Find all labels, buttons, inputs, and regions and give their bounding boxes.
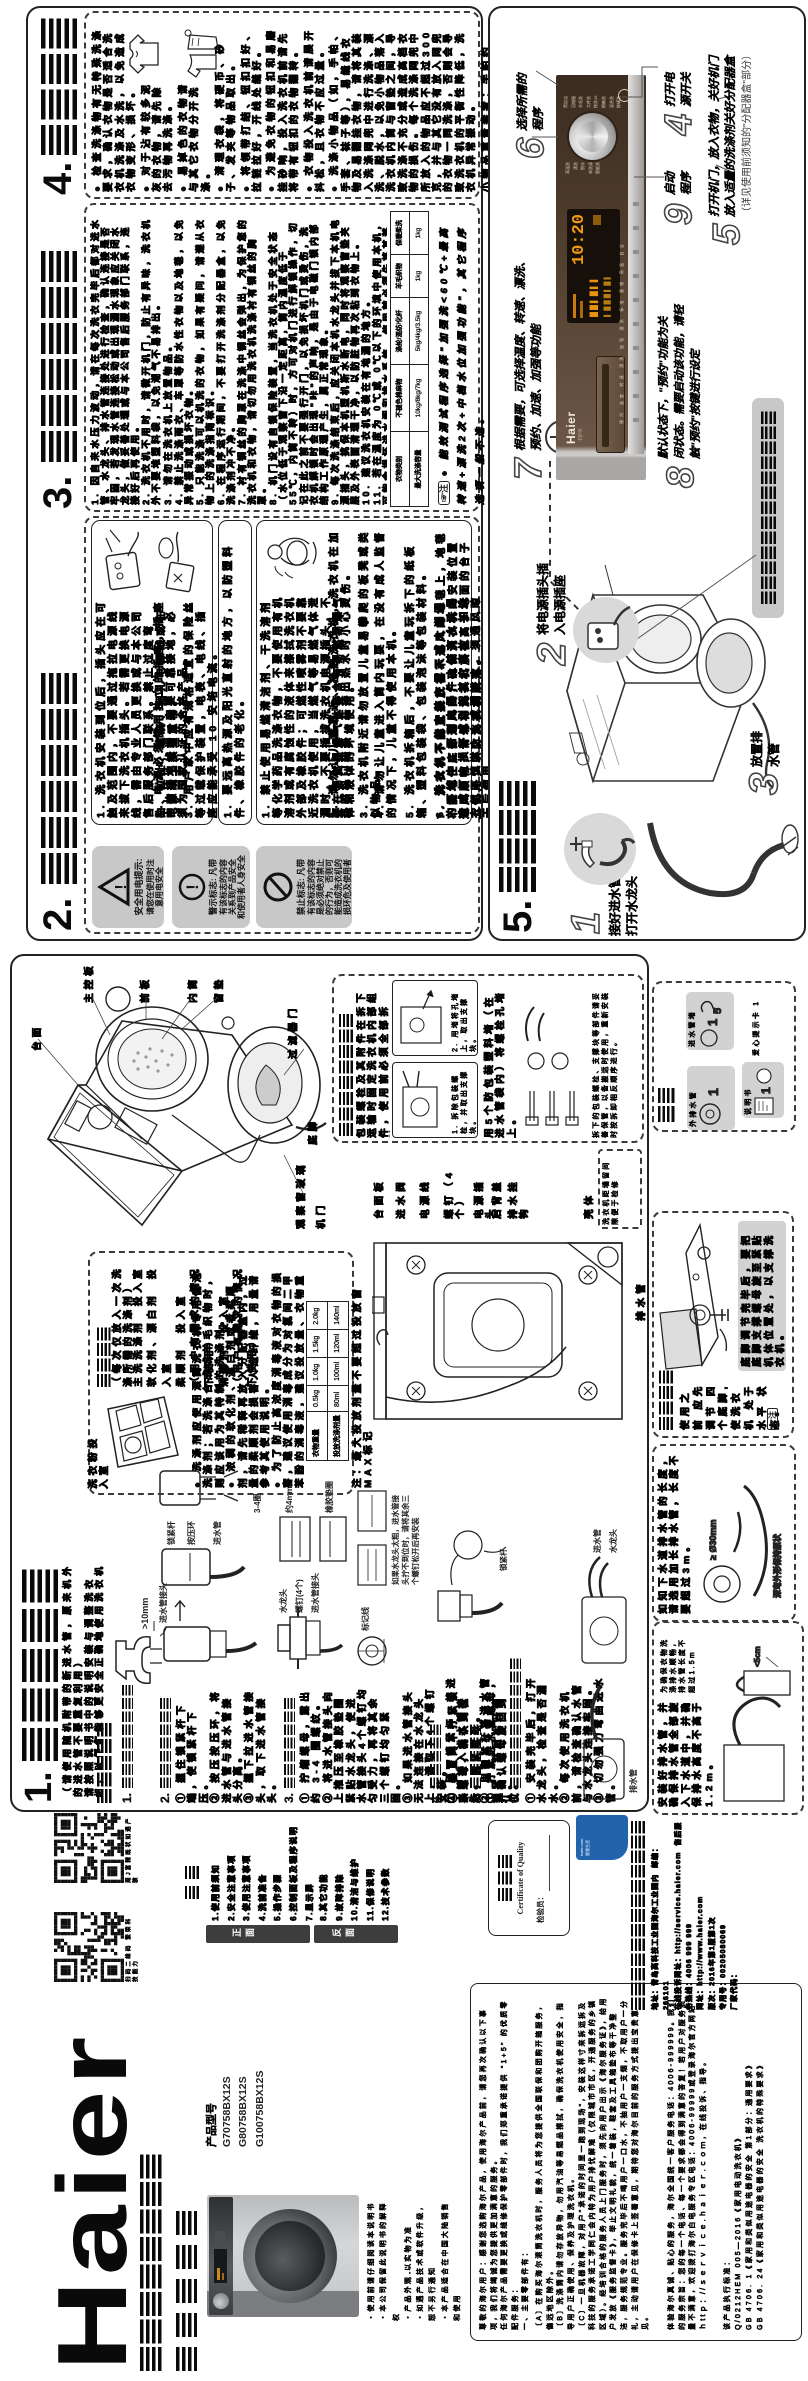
svg-text:水龙头: 水龙头 bbox=[278, 1589, 288, 1614]
svg-text:禁止标志: 凡带: 禁止标志: 凡带 bbox=[296, 858, 306, 916]
svg-text:排水管: 排水管 bbox=[628, 1769, 638, 1793]
svg-text:关系到产品安全: 关系到产品安全 bbox=[227, 858, 237, 915]
svg-text:能造成洗衣机的: 能造成洗衣机的 bbox=[333, 859, 343, 915]
svg-text:≥ Ø30mm: ≥ Ø30mm bbox=[708, 1520, 718, 1560]
svg-text:螺钉(4个): 螺钉(4个) bbox=[294, 1579, 304, 1613]
svg-text:警示标志: 凡带: 警示标志: 凡带 bbox=[208, 858, 218, 915]
svg-text:3-4圈: 3-4圈 bbox=[253, 1493, 262, 1513]
svg-text:1: 1 bbox=[705, 1088, 721, 1096]
svg-text:安全用电提示:: 安全用电提示: bbox=[133, 858, 144, 915]
svg-text:如果水龙头太粗，进水管接: 如果水龙头太粗，进水管接 bbox=[390, 1495, 400, 1585]
svg-text:水龙头: 水龙头 bbox=[608, 1529, 618, 1554]
svg-text:意用电安全: 意用电安全 bbox=[154, 866, 164, 907]
svg-text:>10mm: >10mm bbox=[140, 1598, 150, 1629]
svg-text:!: ! bbox=[113, 884, 130, 889]
svg-text:锁紧杆: 锁紧杆 bbox=[498, 1548, 508, 1571]
svg-text:1: 1 bbox=[759, 1087, 773, 1094]
svg-text:损环危及使用者: 损环危及使用者 bbox=[342, 859, 352, 915]
svg-text:有该标志的内容: 有该标志的内容 bbox=[218, 859, 228, 915]
svg-text:深弯外形保持原状: 深弯外形保持原状 bbox=[772, 1533, 782, 1598]
svg-text:标记线: 标记线 bbox=[360, 1607, 370, 1632]
svg-text:和使用者人身安全: 和使用者人身安全 bbox=[236, 854, 246, 919]
svg-text:进水管接头: 进水管接头 bbox=[310, 1573, 320, 1613]
svg-text:锁紧杆: 锁紧杆 bbox=[166, 1521, 176, 1545]
svg-text:的行为，否则可: 的行为，否则可 bbox=[324, 859, 334, 915]
svg-text:头拧不到位时，请将其余三: 头拧不到位时，请将其余三 bbox=[400, 1495, 410, 1585]
svg-text:请您在使用时注: 请您在使用时注 bbox=[145, 859, 155, 915]
svg-text:有该标志的内容: 有该标志的内容 bbox=[306, 859, 316, 915]
svg-text:是必须绝对禁止: 是必须绝对禁止 bbox=[315, 859, 325, 916]
svg-text:1: 1 bbox=[705, 1019, 720, 1026]
svg-text:按压环: 按压环 bbox=[186, 1521, 196, 1545]
svg-text:5: 5 bbox=[712, 1008, 723, 1014]
svg-text:进水管接头: 进水管接头 bbox=[158, 1583, 168, 1623]
svg-text:<5cm: <5cm bbox=[753, 1646, 762, 1667]
svg-text:进水管: 进水管 bbox=[592, 1529, 602, 1553]
svg-text:!: ! bbox=[183, 884, 202, 890]
svg-text:进水管: 进水管 bbox=[212, 1521, 222, 1545]
svg-text:个螺钉松开后再安装: 个螺钉松开后再安装 bbox=[410, 1517, 420, 1586]
